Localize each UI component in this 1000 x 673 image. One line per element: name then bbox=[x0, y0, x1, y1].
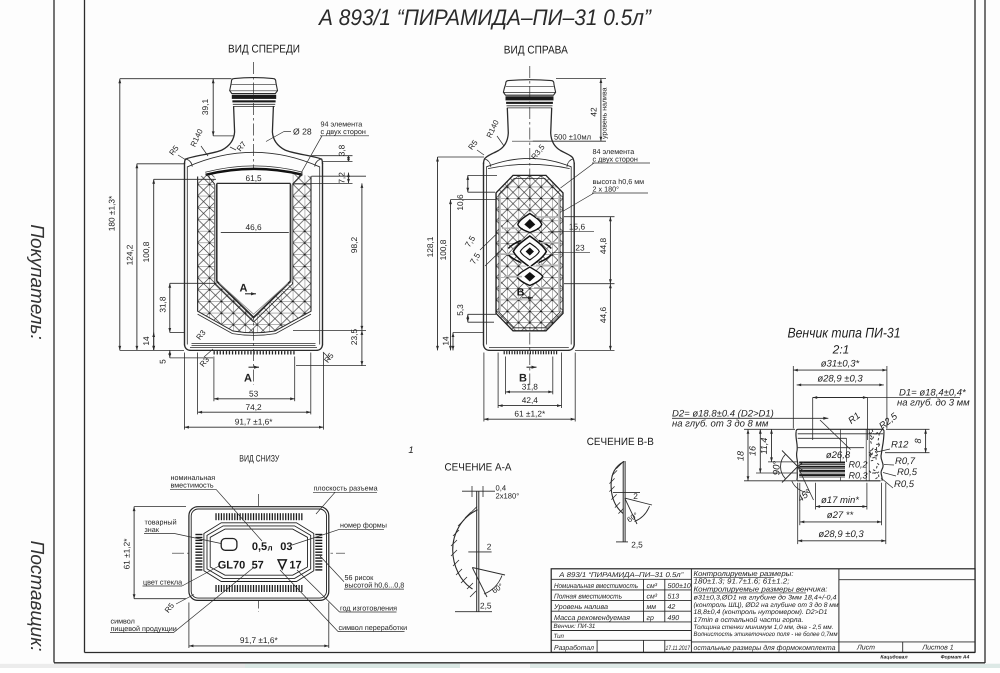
svg-text:74,2: 74,2 bbox=[246, 402, 263, 412]
svg-text:плоскость разъема: плоскость разъема bbox=[314, 484, 378, 493]
svg-text:Волнистость этикеточного поля: Волнистость этикеточного поля - не более… bbox=[694, 631, 839, 638]
svg-text:2,5: 2,5 bbox=[480, 601, 492, 611]
svg-text:500 ±10мл: 500 ±10мл bbox=[554, 132, 591, 141]
svg-text:124,2: 124,2 bbox=[124, 244, 134, 265]
svg-text:98,2: 98,2 bbox=[349, 237, 359, 254]
svg-text:44,6: 44,6 bbox=[598, 307, 608, 324]
svg-text:91,7 ±1,6*: 91,7 ±1,6* bbox=[235, 417, 274, 427]
svg-text:100,8: 100,8 bbox=[438, 239, 448, 260]
svg-text:R12: R12 bbox=[891, 440, 909, 451]
svg-text:ВИД СПРАВА: ВИД СПРАВА bbox=[504, 45, 568, 57]
svg-text:на глуб. до 3 мм: на глуб. до 3 мм bbox=[897, 398, 970, 409]
svg-text:л: л bbox=[267, 544, 272, 553]
svg-text:91,7 ±1,6*: 91,7 ±1,6* bbox=[240, 635, 279, 645]
svg-text:7,2: 7,2 bbox=[337, 172, 347, 184]
svg-text:остальные размеры для формоком: остальные размеры для формокомплекта bbox=[694, 644, 836, 652]
svg-text:14: 14 bbox=[440, 336, 450, 346]
svg-text:8: 8 bbox=[913, 438, 923, 443]
svg-text:см³: см³ bbox=[647, 583, 658, 590]
svg-text:100,8: 100,8 bbox=[141, 241, 151, 262]
svg-text:15,6: 15,6 bbox=[569, 222, 586, 232]
svg-text:А 893/1 “ПИРАМИДА–ПИ–31 0.5л”: А 893/1 “ПИРАМИДА–ПИ–31 0.5л” bbox=[317, 5, 652, 30]
svg-text:500±10: 500±10 bbox=[668, 583, 691, 590]
svg-text:высотой h0,6...0,8: высотой h0,6...0,8 bbox=[345, 581, 405, 590]
svg-text:ø17 min*: ø17 min* bbox=[821, 495, 859, 506]
svg-text:Контролируемые размеры венчика: Контролируемые размеры венчика: bbox=[694, 585, 828, 594]
svg-text:128,1: 128,1 bbox=[425, 236, 435, 257]
svg-text:СЕЧЕНИЕ В-В: СЕЧЕНИЕ В-В bbox=[587, 436, 654, 448]
svg-text:2 х 180°: 2 х 180° bbox=[593, 185, 620, 194]
svg-text:Формат А4: Формат А4 bbox=[941, 655, 970, 661]
svg-text:1: 1 bbox=[408, 445, 413, 456]
svg-text:Тип: Тип bbox=[554, 633, 565, 640]
svg-text:57: 57 bbox=[252, 560, 264, 572]
svg-text:10,6: 10,6 bbox=[455, 194, 465, 211]
svg-text:ø31±0,3,ØD1 на глубине до 3мм: ø31±0,3,ØD1 на глубине до 3мм 18,4+/-0,4 bbox=[694, 594, 837, 601]
svg-text:17: 17 bbox=[289, 560, 301, 572]
svg-text:5,3: 5,3 bbox=[455, 304, 465, 316]
svg-text:мм: мм bbox=[647, 604, 657, 611]
svg-text:2x180°: 2x180° bbox=[496, 492, 520, 501]
svg-text:Масса рекомендуемая: Масса рекомендуемая bbox=[554, 614, 630, 622]
svg-text:17.11.2017: 17.11.2017 bbox=[666, 645, 691, 652]
svg-text:ВИД СПЕРЕДИ: ВИД СПЕРЕДИ bbox=[228, 44, 300, 56]
svg-text:символ переработки: символ переработки bbox=[339, 623, 408, 632]
svg-text:Венчик типа ПИ-31: Венчик типа ПИ-31 bbox=[788, 325, 901, 341]
svg-text:42: 42 bbox=[668, 604, 676, 611]
svg-text:R0,3: R0,3 bbox=[848, 471, 867, 481]
svg-text:на глуб. от 3 до 8 мм: на глуб. от 3 до 8 мм bbox=[672, 419, 769, 430]
svg-text:5: 5 bbox=[157, 359, 167, 364]
svg-text:ВИД СНИЗУ: ВИД СНИЗУ bbox=[239, 454, 279, 464]
svg-text:3,8: 3,8 bbox=[337, 144, 347, 156]
svg-text:R0,2: R0,2 bbox=[848, 460, 867, 470]
svg-text:03: 03 bbox=[280, 541, 292, 553]
svg-text:513: 513 bbox=[668, 594, 680, 601]
svg-text:(контроль ШЦ), ØD2 на глубине: (контроль ШЦ), ØD2 на глубине от 3 до 8 … bbox=[694, 602, 839, 609]
svg-text:17min в остальной части горла.: 17min в остальной части горла. bbox=[694, 616, 804, 624]
svg-text:ø28,9 ±0,3: ø28,9 ±0,3 bbox=[817, 374, 863, 385]
svg-text:18: 18 bbox=[735, 451, 745, 461]
svg-text:42: 42 bbox=[588, 107, 598, 117]
svg-text:номер формы: номер формы bbox=[340, 521, 387, 530]
svg-text:0,5: 0,5 bbox=[252, 541, 267, 553]
svg-text:знак: знак bbox=[145, 525, 160, 534]
svg-text:R0,7: R0,7 bbox=[895, 456, 916, 467]
svg-text:В: В bbox=[517, 287, 525, 299]
svg-text:с двух сторон: с двух сторон bbox=[321, 127, 366, 136]
svg-text:Листов 1: Листов 1 bbox=[921, 645, 953, 652]
svg-text:Покупатель:: Покупатель: bbox=[26, 224, 47, 340]
svg-text:ø27 **: ø27 ** bbox=[827, 510, 854, 521]
svg-text:Разработал: Разработал bbox=[554, 644, 594, 652]
svg-text:гр: гр bbox=[647, 615, 654, 622]
svg-text:44,8: 44,8 bbox=[598, 238, 608, 255]
svg-text:GL70: GL70 bbox=[218, 560, 246, 572]
svg-text:39,1: 39,1 bbox=[200, 99, 210, 116]
svg-text:Уровень налива: Уровень налива bbox=[553, 604, 608, 611]
svg-text:Кацидовал: Кацидовал bbox=[880, 655, 908, 661]
svg-text:490: 490 bbox=[668, 615, 680, 622]
svg-text:53: 53 bbox=[249, 388, 259, 398]
svg-text:14: 14 bbox=[141, 336, 151, 346]
svg-text:см³: см³ bbox=[647, 594, 658, 601]
svg-text:с двух сторон: с двух сторон bbox=[593, 155, 638, 164]
svg-text:пищевой продукции: пищевой продукции bbox=[111, 624, 177, 633]
svg-text:18,8±0,4 (контроль нутромером): 18,8±0,4 (контроль нутромером). D2>D1 bbox=[694, 609, 828, 616]
svg-text:А: А bbox=[244, 373, 252, 385]
svg-text:R0,5: R0,5 bbox=[897, 467, 918, 478]
svg-text:2:1: 2:1 bbox=[832, 343, 850, 357]
svg-text:61 ±1,2*: 61 ±1,2* bbox=[514, 409, 546, 419]
svg-text:23: 23 bbox=[575, 243, 585, 253]
svg-text:2: 2 bbox=[633, 491, 638, 501]
svg-text:2,5: 2,5 bbox=[631, 540, 643, 550]
svg-text:Поставщик:: Поставщик: bbox=[26, 541, 47, 652]
svg-text:ø28,9 ±0,3: ø28,9 ±0,3 bbox=[818, 529, 864, 540]
svg-text:А 893/1 “ПИРАМИДА–ПИ–31 0.5л”: А 893/1 “ПИРАМИДА–ПИ–31 0.5л” bbox=[558, 571, 684, 579]
svg-text:61,5: 61,5 bbox=[246, 173, 263, 183]
svg-text:2: 2 bbox=[487, 542, 492, 552]
svg-text:Лист: Лист bbox=[856, 645, 875, 652]
svg-text:46,6: 46,6 bbox=[246, 222, 263, 232]
svg-text:23,5: 23,5 bbox=[349, 329, 359, 346]
svg-text:Толщина стенки минимум 1,0 мм,: Толщина стенки минимум 1,0 мм, дна - 2,5… bbox=[694, 624, 834, 631]
svg-text:Полная вместимость: Полная вместимость bbox=[554, 594, 622, 601]
svg-text:Номинальная вместимость: Номинальная вместимость bbox=[554, 583, 638, 590]
svg-text:31,8: 31,8 bbox=[157, 296, 167, 313]
svg-text:А: А bbox=[240, 283, 248, 295]
svg-text:СЕЧЕНИЕ А-А: СЕЧЕНИЕ А-А bbox=[445, 462, 512, 474]
svg-text:год изготовления: год изготовления bbox=[340, 603, 397, 612]
svg-text:вместимость: вместимость bbox=[171, 481, 214, 490]
svg-text:180 ±1,3*: 180 ±1,3* bbox=[107, 195, 117, 231]
svg-text:31,8: 31,8 bbox=[522, 382, 539, 392]
svg-text:ø26,8: ø26,8 bbox=[826, 450, 851, 461]
svg-text:ø31±0,3*: ø31±0,3* bbox=[821, 359, 860, 370]
svg-text:11,4: 11,4 bbox=[759, 438, 769, 455]
svg-text:16: 16 bbox=[748, 446, 758, 456]
svg-text:цвет стекла: цвет стекла bbox=[143, 577, 182, 586]
svg-text:уровень налива: уровень налива bbox=[602, 87, 609, 139]
svg-text:61 ±1,2*: 61 ±1,2* bbox=[121, 538, 131, 570]
svg-text:42,4: 42,4 bbox=[522, 395, 539, 405]
svg-text:Ø 28: Ø 28 bbox=[293, 127, 312, 137]
svg-text:Венчик: ПИ-31: Венчик: ПИ-31 bbox=[554, 623, 596, 630]
svg-text:R0,5: R0,5 bbox=[894, 479, 915, 490]
